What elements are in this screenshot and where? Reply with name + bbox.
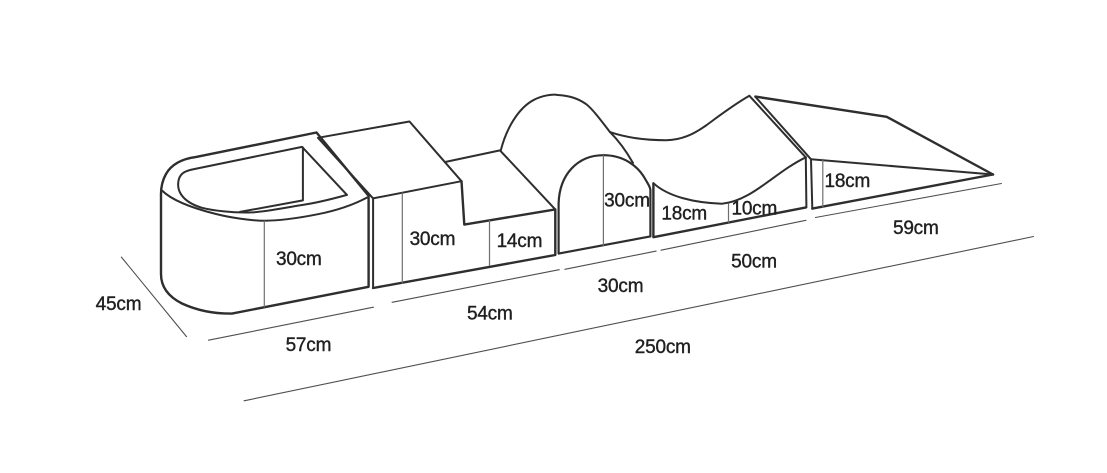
svg-text:10cm: 10cm (731, 199, 777, 220)
svg-text:250cm: 250cm (635, 337, 691, 358)
svg-text:59cm: 59cm (893, 218, 939, 239)
svg-text:18cm: 18cm (824, 171, 870, 192)
svg-text:54cm: 54cm (467, 304, 513, 325)
svg-text:45cm: 45cm (96, 294, 142, 315)
svg-text:30cm: 30cm (410, 229, 456, 250)
svg-text:14cm: 14cm (497, 231, 543, 252)
svg-text:30cm: 30cm (598, 276, 644, 297)
svg-text:57cm: 57cm (286, 335, 332, 356)
svg-text:30cm: 30cm (604, 191, 650, 212)
svg-text:18cm: 18cm (661, 204, 707, 225)
svg-text:50cm: 50cm (731, 252, 777, 273)
svg-text:30cm: 30cm (276, 249, 322, 270)
